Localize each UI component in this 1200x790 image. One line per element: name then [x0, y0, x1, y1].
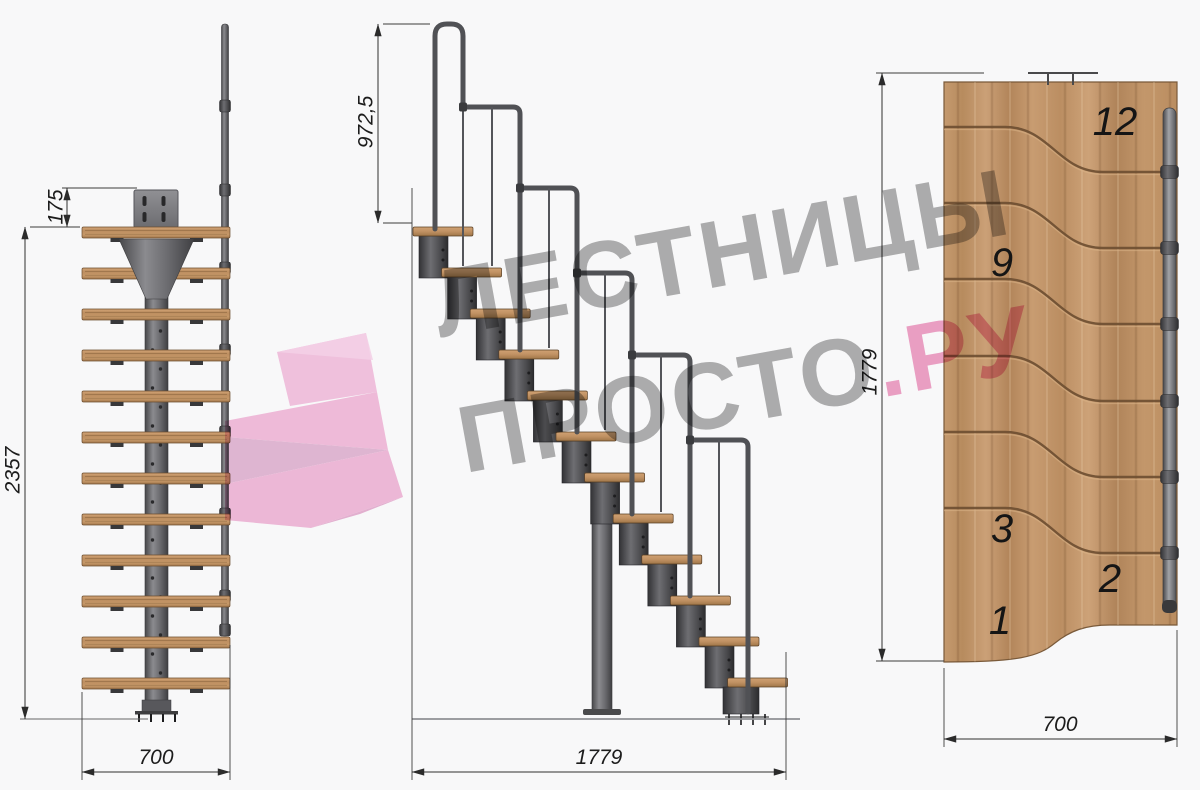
watermark-logo [0, 0, 430, 560]
step-number: 1 [989, 599, 1011, 643]
bottom-tread [728, 678, 788, 687]
side-support-column [592, 502, 612, 712]
support-column-flange [583, 709, 621, 715]
watermark-line2-pink: .РУ [867, 285, 1043, 418]
dimension-label: 1779 [576, 746, 623, 769]
tube-end-cap [1162, 600, 1177, 613]
plan-handrail-tube [1161, 108, 1179, 613]
step-number: 12 [1093, 100, 1138, 144]
bottom-base-module [723, 687, 759, 714]
step-number: 3 [991, 507, 1013, 551]
staircase-drawing: 175 2357 700 [0, 0, 1200, 790]
dimension-label: 700 [138, 746, 173, 769]
step-number: 2 [1098, 557, 1121, 601]
front-anchor-feet [135, 711, 178, 722]
dimension-label: 700 [1042, 713, 1077, 736]
